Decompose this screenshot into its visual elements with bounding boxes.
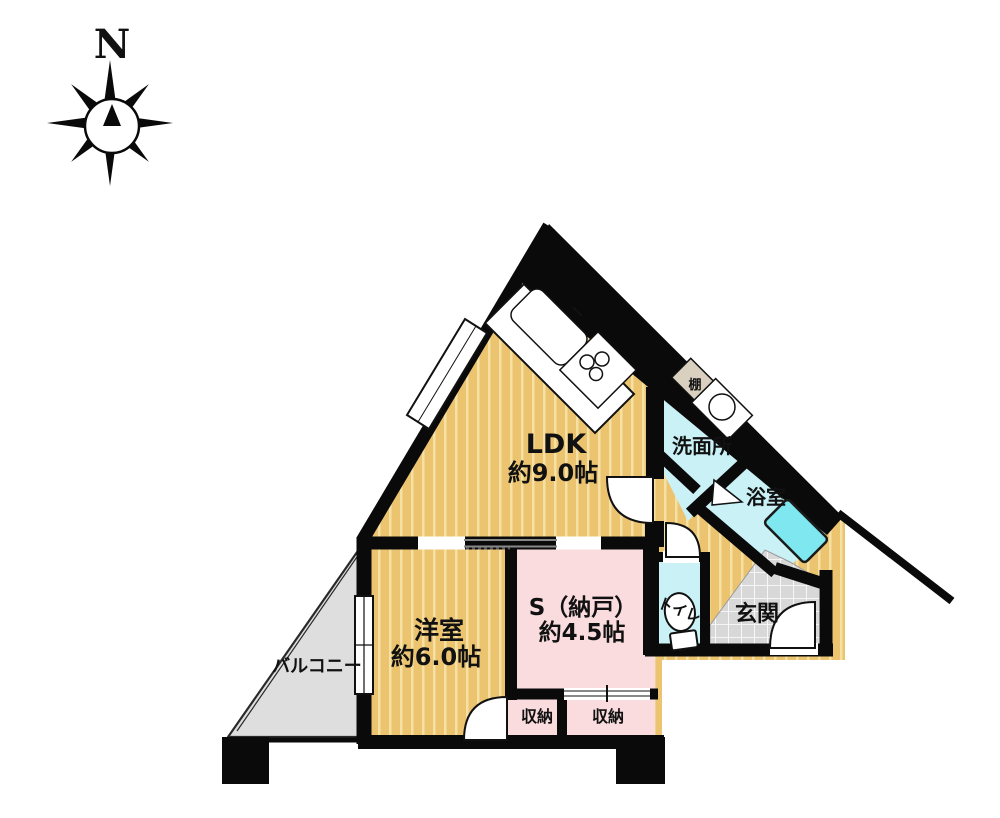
label-balcony: バルコニー: [272, 656, 362, 677]
label-washroom: 洗面所: [672, 434, 732, 458]
label-storage-room: S（納戸）: [529, 594, 638, 621]
label-ldk: LDK: [526, 429, 588, 460]
label-ldk-size: 約9.0帖: [508, 459, 599, 487]
wall-extension-line: [838, 513, 952, 601]
label-closet-left: 収納: [521, 707, 553, 726]
stove-burner: [595, 352, 609, 366]
washbasin-bowl: [709, 394, 735, 420]
balcony: [228, 545, 362, 737]
label-storage-room-size: 約4.5帖: [539, 619, 626, 646]
compass-north-label: N: [94, 21, 131, 68]
opening-ldk-westernroom: [418, 537, 465, 550]
wall-block-right: [616, 737, 665, 784]
floor-plan: LDK 約9.0帖 洗面所 浴室 棚 洋室 約6.0帖 S（納戸） 約4.5帖 …: [0, 0, 1000, 818]
compass: N: [47, 21, 173, 186]
opening-ldk-storage: [556, 537, 601, 550]
wall-block-left: [222, 737, 269, 784]
label-bathroom: 浴室: [746, 485, 786, 509]
label-western-room-size: 約6.0帖: [391, 643, 482, 671]
wall-below-ldk-door: [645, 521, 664, 547]
label-closet-right: 収納: [592, 707, 624, 726]
stove-burner: [580, 355, 594, 369]
floor-plan-page: LDK 約9.0帖 洗面所 浴室 棚 洋室 約6.0帖 S（納戸） 約4.5帖 …: [0, 0, 1000, 818]
label-shelf: 棚: [688, 377, 701, 393]
wall-washroom-left: [646, 387, 664, 479]
label-entrance: 玄関: [735, 601, 779, 627]
stove-burner: [590, 368, 603, 381]
label-western-room: 洋室: [414, 616, 464, 645]
